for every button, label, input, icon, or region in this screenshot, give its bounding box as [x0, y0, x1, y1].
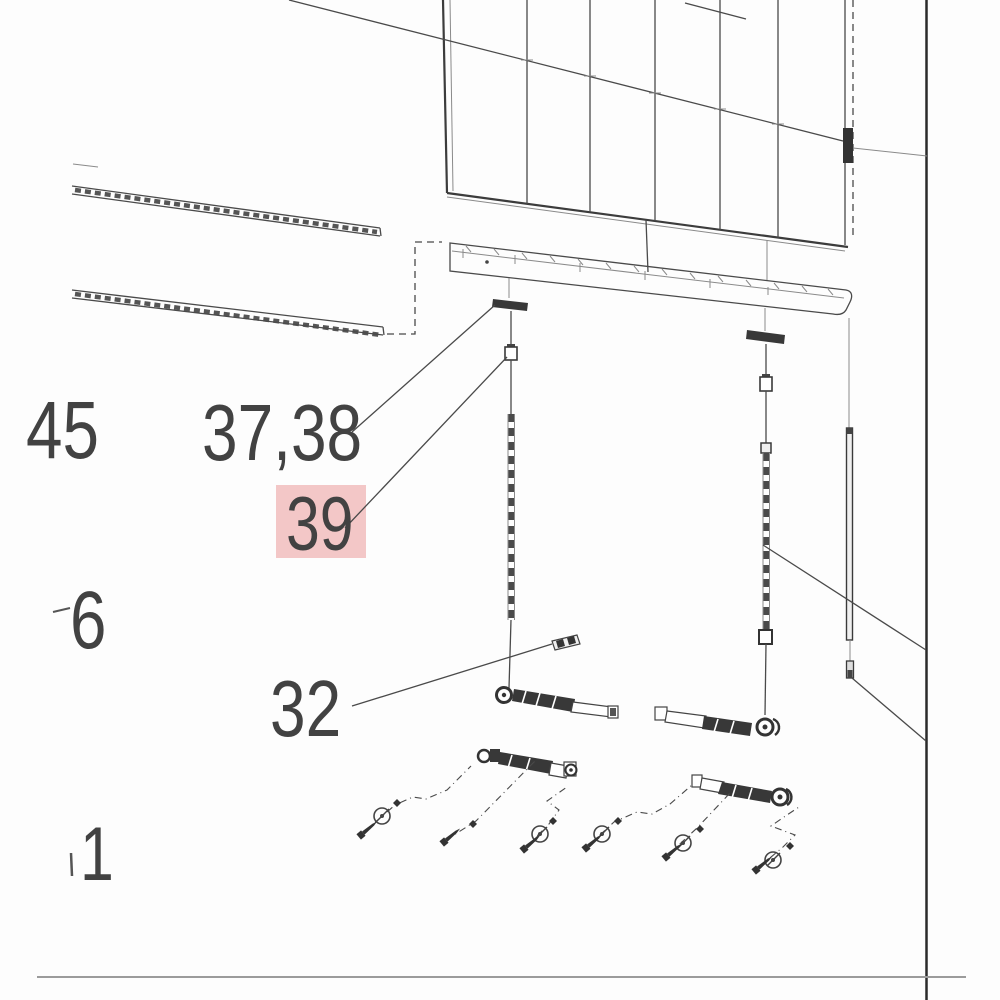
leader-to-border-upper: [763, 545, 926, 650]
rod-bracket: [492, 299, 528, 311]
diagonal-line-long: [289, 0, 843, 141]
rod-end-cap: [759, 630, 772, 644]
page-borders: [37, 0, 966, 1000]
pin-bead: [393, 799, 401, 807]
callout-37-38: 37,38: [202, 388, 362, 477]
callout-6: 6: [70, 574, 106, 666]
panel-rail-connector: [646, 220, 648, 272]
side-trim-strips: [72, 164, 442, 335]
cam-lever-d: [692, 775, 791, 805]
cam-lever-c: [478, 749, 577, 778]
threaded-rod-right: [746, 308, 785, 715]
washer: [374, 808, 390, 824]
leader-37-38: [352, 305, 495, 432]
threaded-rod-left: [492, 278, 528, 688]
screw: [439, 826, 462, 847]
diagonal-line-short: [685, 3, 746, 19]
leader-6-fragment: [53, 608, 70, 612]
callout-32: 32: [270, 664, 341, 753]
pin-bead: [549, 817, 557, 825]
leader-39: [345, 357, 507, 528]
exploded-parts-diagram: 45 37,38 39 6 32 1: [0, 0, 1000, 1000]
screw-assemblies: [356, 759, 799, 875]
part-32-catch: [552, 635, 580, 650]
rod-bracket: [746, 330, 785, 344]
callout-1: 1: [80, 812, 114, 897]
diagram-canvas: 45 37,38 39 6 32 1: [0, 0, 1000, 1000]
pin-bead: [614, 817, 622, 825]
panel-edge-bracket: [843, 128, 853, 163]
slatted-panel: [289, 0, 927, 281]
thin-rod-right-edge: [763, 318, 926, 741]
leader-to-border-lower: [852, 678, 926, 741]
callout-39: 39: [286, 482, 354, 567]
cam-lever-b: [655, 707, 779, 736]
cam-lever-a: [497, 688, 619, 719]
callout-45: 45: [26, 384, 99, 476]
callout-labels: 45 37,38 39 6 32 1: [26, 384, 362, 897]
hidden-edge-bracket: [387, 242, 442, 334]
pin-bead: [696, 825, 704, 833]
rod-connector: [760, 377, 772, 391]
leader-1-fragment: [71, 853, 72, 876]
